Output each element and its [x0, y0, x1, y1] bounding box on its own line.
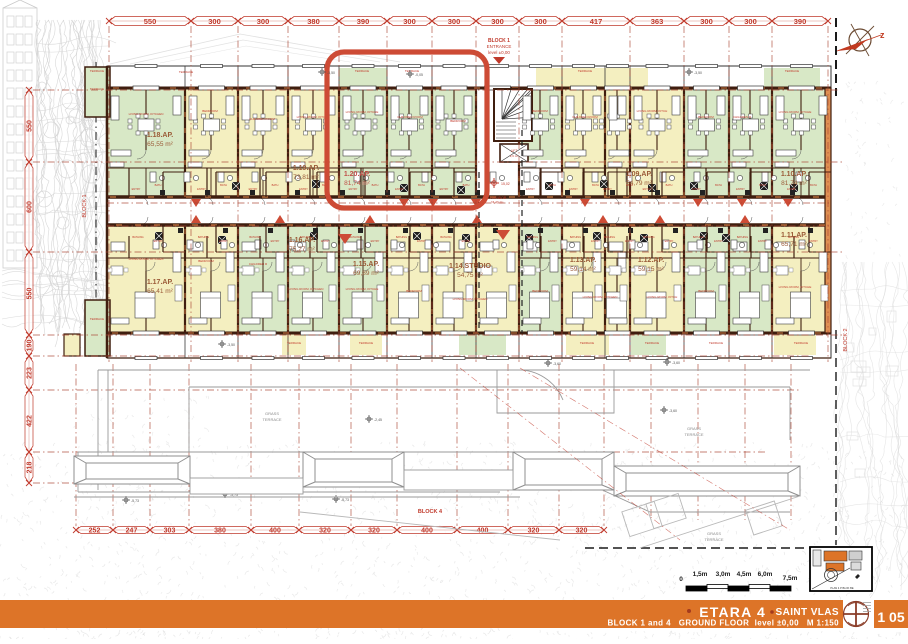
svg-text:-5,73: -5,73: [341, 498, 349, 502]
svg-text:3,0m: 3,0m: [716, 571, 731, 578]
svg-text:0: 0: [679, 576, 683, 583]
svg-text:ENTRY: ENTRY: [321, 239, 330, 243]
svg-text:TERRACE: TERRACE: [645, 341, 659, 345]
svg-text:PLAN 4 P BLOK BE: PLAN 4 P BLOK BE: [830, 586, 853, 590]
svg-text:73,81 m²: 73,81 m²: [293, 174, 319, 181]
svg-text:ENTRY: ENTRY: [643, 187, 652, 191]
svg-text:BATHING: BATHING: [737, 235, 748, 239]
svg-text:1.13.AP.: 1.13.AP.: [570, 257, 596, 264]
svg-text:BATH: BATH: [220, 183, 227, 187]
svg-text:TERRACE: TERRACE: [578, 69, 592, 73]
svg-text:7,5m: 7,5m: [783, 575, 798, 582]
svg-text:LIVING ROOM, KITCHEN: LIVING ROOM, KITCHEN: [129, 112, 164, 116]
svg-text:LIVING ROOM, KITCHE: LIVING ROOM, KITCHE: [346, 110, 379, 114]
svg-text:TERRACE: TERRACE: [794, 341, 808, 345]
svg-text:320: 320: [319, 528, 331, 535]
svg-text:BATHING: BATHING: [132, 235, 143, 239]
svg-text:LIVING ROOM, KITCH: LIVING ROOM, KITCH: [637, 109, 668, 113]
svg-text:190: 190: [27, 340, 34, 352]
svg-text:59,14 m²: 59,14 m²: [570, 266, 596, 273]
svg-text:TERRACE: TERRACE: [684, 432, 703, 437]
svg-text:ENTRY: ENTRY: [154, 239, 163, 243]
svg-text:LIVING ROOM, KITCHEN: LIVING ROOM, KITCHEN: [583, 295, 618, 299]
svg-text:BATH: BATH: [592, 183, 599, 187]
svg-text:BATHING: BATHING: [349, 235, 360, 239]
svg-text:320: 320: [576, 528, 588, 535]
svg-text:600: 600: [27, 201, 34, 213]
svg-text:1.20.AP.: 1.20.AP.: [344, 171, 370, 178]
svg-text:BEDROOM: BEDROOM: [698, 289, 714, 293]
svg-text:1.11.AP.: 1.11.AP.: [781, 232, 807, 239]
svg-text:-2,45: -2,45: [374, 418, 382, 422]
svg-text:247: 247: [126, 528, 138, 535]
svg-text:1,5m: 1,5m: [693, 571, 708, 578]
svg-text:300: 300: [403, 17, 416, 26]
svg-text:ENTRY: ENTRY: [132, 187, 141, 191]
svg-text:300: 300: [700, 17, 713, 26]
svg-text:1 05: 1 05: [877, 609, 904, 625]
svg-text:4,5m: 4,5m: [737, 571, 752, 578]
svg-text:65,41 m²: 65,41 m²: [147, 288, 173, 295]
svg-text:BLOCK 2: BLOCK 2: [843, 328, 849, 351]
svg-text:BATHING: BATHING: [440, 235, 451, 239]
svg-text:ENTRY: ENTRY: [462, 239, 471, 243]
svg-text:1.16.AP.: 1.16.AP.: [289, 237, 315, 244]
svg-text:BEDROOM: BEDROOM: [198, 259, 214, 263]
svg-text:ENTRY: ENTRY: [299, 187, 308, 191]
svg-text:1.19.AP.: 1.19.AP.: [293, 165, 319, 172]
svg-text:-3,50: -3,50: [227, 343, 235, 347]
svg-text:z: z: [880, 30, 885, 40]
svg-text:BATH: BATH: [155, 183, 162, 187]
svg-text:LIVING ROOM, KITCHE: LIVING ROOM, KITCHE: [779, 285, 812, 289]
svg-text:BEDROOM: BEDROOM: [406, 289, 422, 293]
svg-text:BATH: BATH: [715, 183, 722, 187]
svg-text:1.10.AP.: 1.10.AP.: [781, 171, 807, 178]
svg-text:LIVING ROOM, KITCHE: LIVING ROOM, KITCHE: [779, 110, 812, 114]
svg-text:59,15 m²: 59,15 m²: [638, 266, 664, 273]
svg-text:TERRACE: TERRACE: [355, 69, 369, 73]
svg-text:300: 300: [491, 17, 504, 26]
svg-text:ENTRY: ENTRY: [440, 187, 449, 191]
svg-text:ENTRY: ENTRY: [591, 239, 600, 243]
svg-text:1.14.STUDIO: 1.14.STUDIO: [449, 263, 492, 270]
svg-text:BATH: BATH: [549, 183, 556, 187]
svg-text:BATH: BATH: [463, 183, 470, 187]
svg-text:BEDROOM: BEDROOM: [532, 289, 548, 293]
svg-text:-3,60: -3,60: [669, 409, 677, 413]
svg-text:-5,73: -5,73: [131, 499, 139, 503]
svg-text:ENTRY: ENTRY: [665, 239, 674, 243]
svg-text:-3,50: -3,50: [327, 71, 335, 75]
svg-text:81,74 m²: 81,74 m²: [344, 180, 370, 187]
svg-text:BATHING: BATHING: [604, 235, 615, 239]
svg-text:-0,05: -0,05: [415, 73, 423, 77]
svg-text:303: 303: [164, 528, 176, 535]
svg-text:ENTRY: ENTRY: [809, 239, 818, 243]
svg-text:15,02: 15,02: [501, 182, 510, 186]
svg-text:LIVING ROOM, KITCHEN: LIVING ROOM, KITCHEN: [289, 287, 324, 291]
svg-text:223: 223: [27, 367, 34, 379]
svg-text:69,89 m²: 69,89 m²: [353, 270, 379, 277]
svg-text:LIVING ROOM, KITCHE: LIVING ROOM, KITCHE: [346, 287, 379, 291]
svg-text:1.15.AP.: 1.15.AP.: [353, 261, 379, 268]
svg-text:SAINT VLAS: SAINT VLAS: [776, 607, 839, 618]
svg-text:74,40 m²: 74,40 m²: [491, 201, 504, 205]
svg-text:1.18.AP.: 1.18.AP.: [147, 132, 173, 139]
svg-text:ENTRY: ENTRY: [548, 239, 557, 243]
svg-text:BATHING: BATHING: [570, 235, 581, 239]
svg-text:BATHING: BATHING: [198, 235, 209, 239]
svg-text:ENTRY: ENTRY: [371, 239, 380, 243]
svg-text:BATHING: BATHING: [396, 235, 407, 239]
svg-text:GRASS: GRASS: [265, 411, 279, 416]
svg-text:BATHING: BATHING: [249, 235, 260, 239]
svg-text:65,55 m²: 65,55 m²: [147, 141, 173, 148]
svg-text:BLOCK 1: BLOCK 1: [82, 194, 88, 217]
svg-text:BATH: BATH: [666, 183, 673, 187]
svg-text:TERRACE: TERRACE: [580, 341, 594, 345]
svg-text:300: 300: [257, 17, 270, 26]
svg-text:BATH: BATH: [418, 183, 425, 187]
svg-text:LIVING ROOM, KITCHEN: LIVING ROOM, KITCHEN: [129, 257, 164, 261]
svg-text:ENTRY: ENTRY: [349, 187, 358, 191]
svg-text:54,75 m²: 54,75 m²: [457, 272, 483, 279]
svg-text:380: 380: [307, 17, 320, 26]
svg-text:390: 390: [794, 17, 807, 26]
svg-text:ENTRANCE: ENTRANCE: [487, 44, 512, 49]
svg-text:TERRACE: TERRACE: [359, 341, 373, 345]
svg-text:TERRACE: TERRACE: [90, 69, 104, 73]
svg-text:BATHING: BATHING: [643, 235, 654, 239]
svg-text:ENTRY: ENTRY: [736, 187, 745, 191]
svg-text:300: 300: [534, 17, 547, 26]
svg-text:ENTRY: ENTRY: [692, 187, 701, 191]
svg-text:BLOCK 4: BLOCK 4: [418, 509, 443, 515]
svg-text:550: 550: [27, 120, 34, 132]
svg-text:CORRIDOR: CORRIDOR: [488, 196, 507, 200]
svg-text:BEDROOM: BEDROOM: [532, 109, 548, 113]
svg-text:CHILDREN R: CHILDREN R: [733, 115, 752, 119]
svg-text:CHILDREN R: CHILDREN R: [249, 262, 268, 266]
svg-text:BLOCK 1 and 4 GROUND FLOOR: BLOCK 1 and 4 GROUND FLOOR level ±0,00 M…: [607, 619, 839, 628]
svg-text:TERRACE: TERRACE: [704, 537, 723, 542]
svg-text:TERRACE: TERRACE: [709, 341, 723, 345]
svg-text:BATH: BATH: [759, 183, 766, 187]
svg-text:GRASS: GRASS: [707, 531, 721, 536]
svg-text:BATH: BATH: [810, 183, 817, 187]
svg-text:BEDROOM: BEDROOM: [450, 119, 466, 123]
svg-text:LIFT: LIFT: [511, 149, 518, 153]
svg-text:1.12.AP.: 1.12.AP.: [638, 257, 664, 264]
svg-text:81,74 m²: 81,74 m²: [781, 180, 807, 187]
svg-text:ENTRY: ENTRY: [395, 187, 404, 191]
svg-text:ENTRY: ENTRY: [758, 239, 767, 243]
svg-text:TERRACE: TERRACE: [90, 87, 104, 91]
svg-text:300: 300: [744, 17, 757, 26]
svg-text:TERRACE: TERRACE: [785, 69, 799, 73]
svg-text:ENTRY: ENTRY: [197, 187, 206, 191]
svg-text:BATH: BATH: [372, 183, 379, 187]
svg-text:BATH: BATH: [272, 183, 279, 187]
svg-text:TERRACE: TERRACE: [262, 417, 281, 422]
svg-text:-3,60: -3,60: [672, 361, 680, 365]
svg-text:GRASS: GRASS: [687, 426, 701, 431]
svg-text:390: 390: [357, 17, 370, 26]
svg-text:LIVING ROOM, KITCHEN: LIVING ROOM, KITCHEN: [453, 297, 488, 301]
svg-text:550: 550: [144, 17, 157, 26]
svg-text:ENTRY: ENTRY: [219, 239, 228, 243]
svg-text:ENTRY: ENTRY: [569, 187, 578, 191]
svg-text:363: 363: [651, 17, 664, 26]
svg-text:ENTRY: ENTRY: [417, 239, 426, 243]
svg-text:BATHING: BATHING: [693, 235, 704, 239]
svg-text:BEDROOM: BEDROOM: [202, 109, 218, 113]
svg-text:level ±0,00: level ±0,00: [488, 50, 510, 55]
svg-text:CHILDREN ROOM: CHILDREN ROOM: [572, 115, 598, 119]
svg-text:-3,60: -3,60: [553, 362, 561, 366]
svg-text:1.17.AP.: 1.17.AP.: [147, 279, 173, 286]
svg-text:-3,50: -3,50: [694, 71, 702, 75]
svg-text:BATHING: BATHING: [527, 235, 538, 239]
svg-text:320: 320: [368, 528, 380, 535]
svg-text:2,6 m²: 2,6 m²: [510, 154, 519, 158]
svg-text:400: 400: [269, 528, 281, 535]
svg-text:ENTRY: ENTRY: [625, 239, 634, 243]
svg-text:550: 550: [27, 288, 34, 300]
svg-text:400: 400: [421, 528, 433, 535]
svg-text:TERRACE: TERRACE: [90, 317, 104, 321]
svg-text:LIVING ROOM, KITCH: LIVING ROOM, KITCH: [647, 295, 678, 299]
svg-text:380: 380: [214, 528, 226, 535]
svg-text:BEDROOM: BEDROOM: [698, 115, 714, 119]
svg-text:6,0m: 6,0m: [758, 571, 773, 578]
svg-text:300: 300: [448, 17, 461, 26]
svg-text:300: 300: [208, 17, 221, 26]
svg-text:ENTRY: ENTRY: [271, 239, 280, 243]
svg-text:65,71 m²: 65,71 m²: [781, 241, 807, 248]
svg-text:LIVING ROOM, KITCH: LIVING ROOM, KITCH: [297, 115, 328, 119]
svg-text:218: 218: [27, 462, 34, 474]
svg-text:ENTRY: ENTRY: [526, 187, 535, 191]
svg-text:422: 422: [27, 415, 34, 427]
svg-text:CHILDREN ROOM: CHILDREN ROOM: [249, 117, 275, 121]
svg-text:CHILDREN ROOM: CHILDREN ROOM: [397, 115, 423, 119]
svg-text:ENTRY: ENTRY: [714, 239, 723, 243]
svg-text:417: 417: [590, 17, 603, 26]
svg-text:320: 320: [528, 528, 540, 535]
svg-text:252: 252: [89, 528, 101, 535]
svg-text:TERRACE: TERRACE: [287, 341, 301, 345]
